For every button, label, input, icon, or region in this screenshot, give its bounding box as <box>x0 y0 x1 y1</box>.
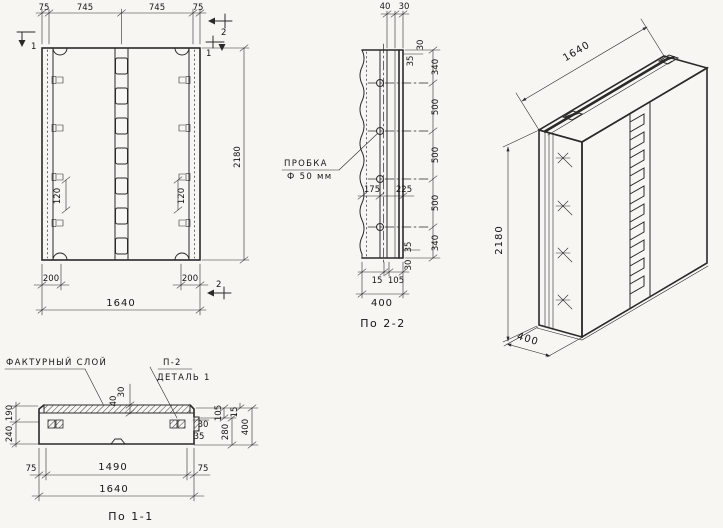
front-dim-top-75-right: 75 <box>193 3 204 13</box>
s11-dim-105: 105 <box>214 405 224 421</box>
s11-dim-1640: 1640 <box>99 484 128 495</box>
s22-dim-500-c: 500 <box>431 195 441 211</box>
s22-dim-340-top: 340 <box>431 59 441 75</box>
s22-top-dim-lines <box>381 11 409 48</box>
iso-face-key-channel <box>630 102 650 309</box>
s22-dim-15: 15 <box>372 276 383 286</box>
iso-side-edge-groove <box>545 132 553 329</box>
s22-dim-35-edge-bottom: 35 <box>404 242 414 253</box>
s22-dim-30-top: 30 <box>399 2 410 12</box>
cut-1-left-label: 1 <box>31 42 36 52</box>
plug-callout-line2: Ф 50 мм <box>287 172 332 182</box>
front-dim-top-75-left: 75 <box>39 3 50 13</box>
front-dim-120-right: 120 <box>177 188 187 204</box>
plug-callout: ПРОБКА Ф 50 мм <box>282 134 377 182</box>
s11-dim-40-layer: 40 <box>109 396 119 407</box>
front-top-dim-lines <box>36 9 206 44</box>
anchor-hooks <box>52 77 190 227</box>
iso-dim-1640: 1640 <box>561 40 592 64</box>
drawing-sheet: 75 745 745 75 120 120 200 200 1640 2180 … <box>0 0 723 528</box>
s11-dim-1490: 1490 <box>98 462 127 473</box>
front-view: 75 745 745 75 120 120 200 200 1640 2180 … <box>17 3 249 315</box>
central-key-column <box>115 48 128 260</box>
iso-plug-marks <box>556 153 572 309</box>
s11-dim-75-right: 75 <box>198 464 209 474</box>
s22-dim-30-edge-top: 30 <box>416 40 426 51</box>
iso-dim-2180: 2180 <box>494 225 505 254</box>
lifting-notches <box>53 48 189 260</box>
s22-dim-500-b: 500 <box>431 147 441 163</box>
isometric-view: 1640 2180 400 <box>494 19 708 357</box>
front-dim-1640: 1640 <box>106 298 135 309</box>
front-dim-top-745-left: 745 <box>77 3 93 13</box>
s11-dim-400: 400 <box>241 419 251 435</box>
s11-dim-75-left: 75 <box>26 464 37 474</box>
plug-leader-line <box>339 134 377 170</box>
s11-dim-15: 15 <box>230 407 240 418</box>
cut-2-top-marker <box>208 14 232 28</box>
detail-ref-label: П-2 <box>163 358 182 368</box>
s22-title: По 2-2 <box>360 317 405 330</box>
plug-callout-line1: ПРОБКА <box>284 159 328 169</box>
iso-panel-faces <box>539 56 707 337</box>
front-dim-200-left: 200 <box>43 274 59 284</box>
s11-body <box>39 405 199 444</box>
s22-dim-30-edge-bottom: 30 <box>404 260 414 271</box>
section-2-2-view: 40 30 30 35 340 500 500 500 340 35 30 17… <box>282 2 441 330</box>
cut-2-bottom-label: 2 <box>216 280 221 290</box>
iso-top-ridge <box>544 58 672 135</box>
s11-title: По 1-1 <box>108 510 153 523</box>
s11-dim-240: 240 <box>5 426 15 442</box>
technical-drawing: 75 745 745 75 120 120 200 200 1640 2180 … <box>0 0 723 528</box>
s22-dim-40: 40 <box>380 2 391 12</box>
s22-dim-225: 225 <box>396 185 412 195</box>
s11-dim-280: 280 <box>221 424 231 440</box>
detail-label: ДЕТАЛЬ 1 <box>157 373 211 383</box>
s22-dim-500-a: 500 <box>431 99 441 115</box>
front-dim-120-left: 120 <box>53 188 63 204</box>
s11-dim-30-tongue: 30 <box>198 420 209 430</box>
edge-strips <box>48 48 195 260</box>
s22-dim-400: 400 <box>371 298 393 309</box>
cut-2-top-label: 2 <box>221 28 226 38</box>
s22-dim-35-edge-top: 35 <box>406 56 416 67</box>
s11-dim-35-tongue: 35 <box>194 432 205 442</box>
textured-layer-label: ФАКТУРНЫЙ СЛОЙ <box>6 356 107 368</box>
iso-dim-400: 400 <box>516 331 540 348</box>
section-1-1-view: ФАКТУРНЫЙ СЛОЙ П-2 ДЕТАЛЬ 1 190 240 30 4… <box>5 356 258 523</box>
front-dim-200-right: 200 <box>182 274 198 284</box>
s22-dim-175: 175 <box>364 185 380 195</box>
textured-layer-leader <box>85 369 103 404</box>
front-dim-top-745-right: 745 <box>149 3 165 13</box>
s11-dim-190: 190 <box>5 405 15 421</box>
s22-dim-340-bottom: 340 <box>431 235 441 251</box>
panel-outline <box>42 48 200 260</box>
front-dim-2180: 2180 <box>233 146 243 168</box>
cut-1-right-label: 1 <box>206 49 211 59</box>
s22-dim-105: 105 <box>388 276 404 286</box>
